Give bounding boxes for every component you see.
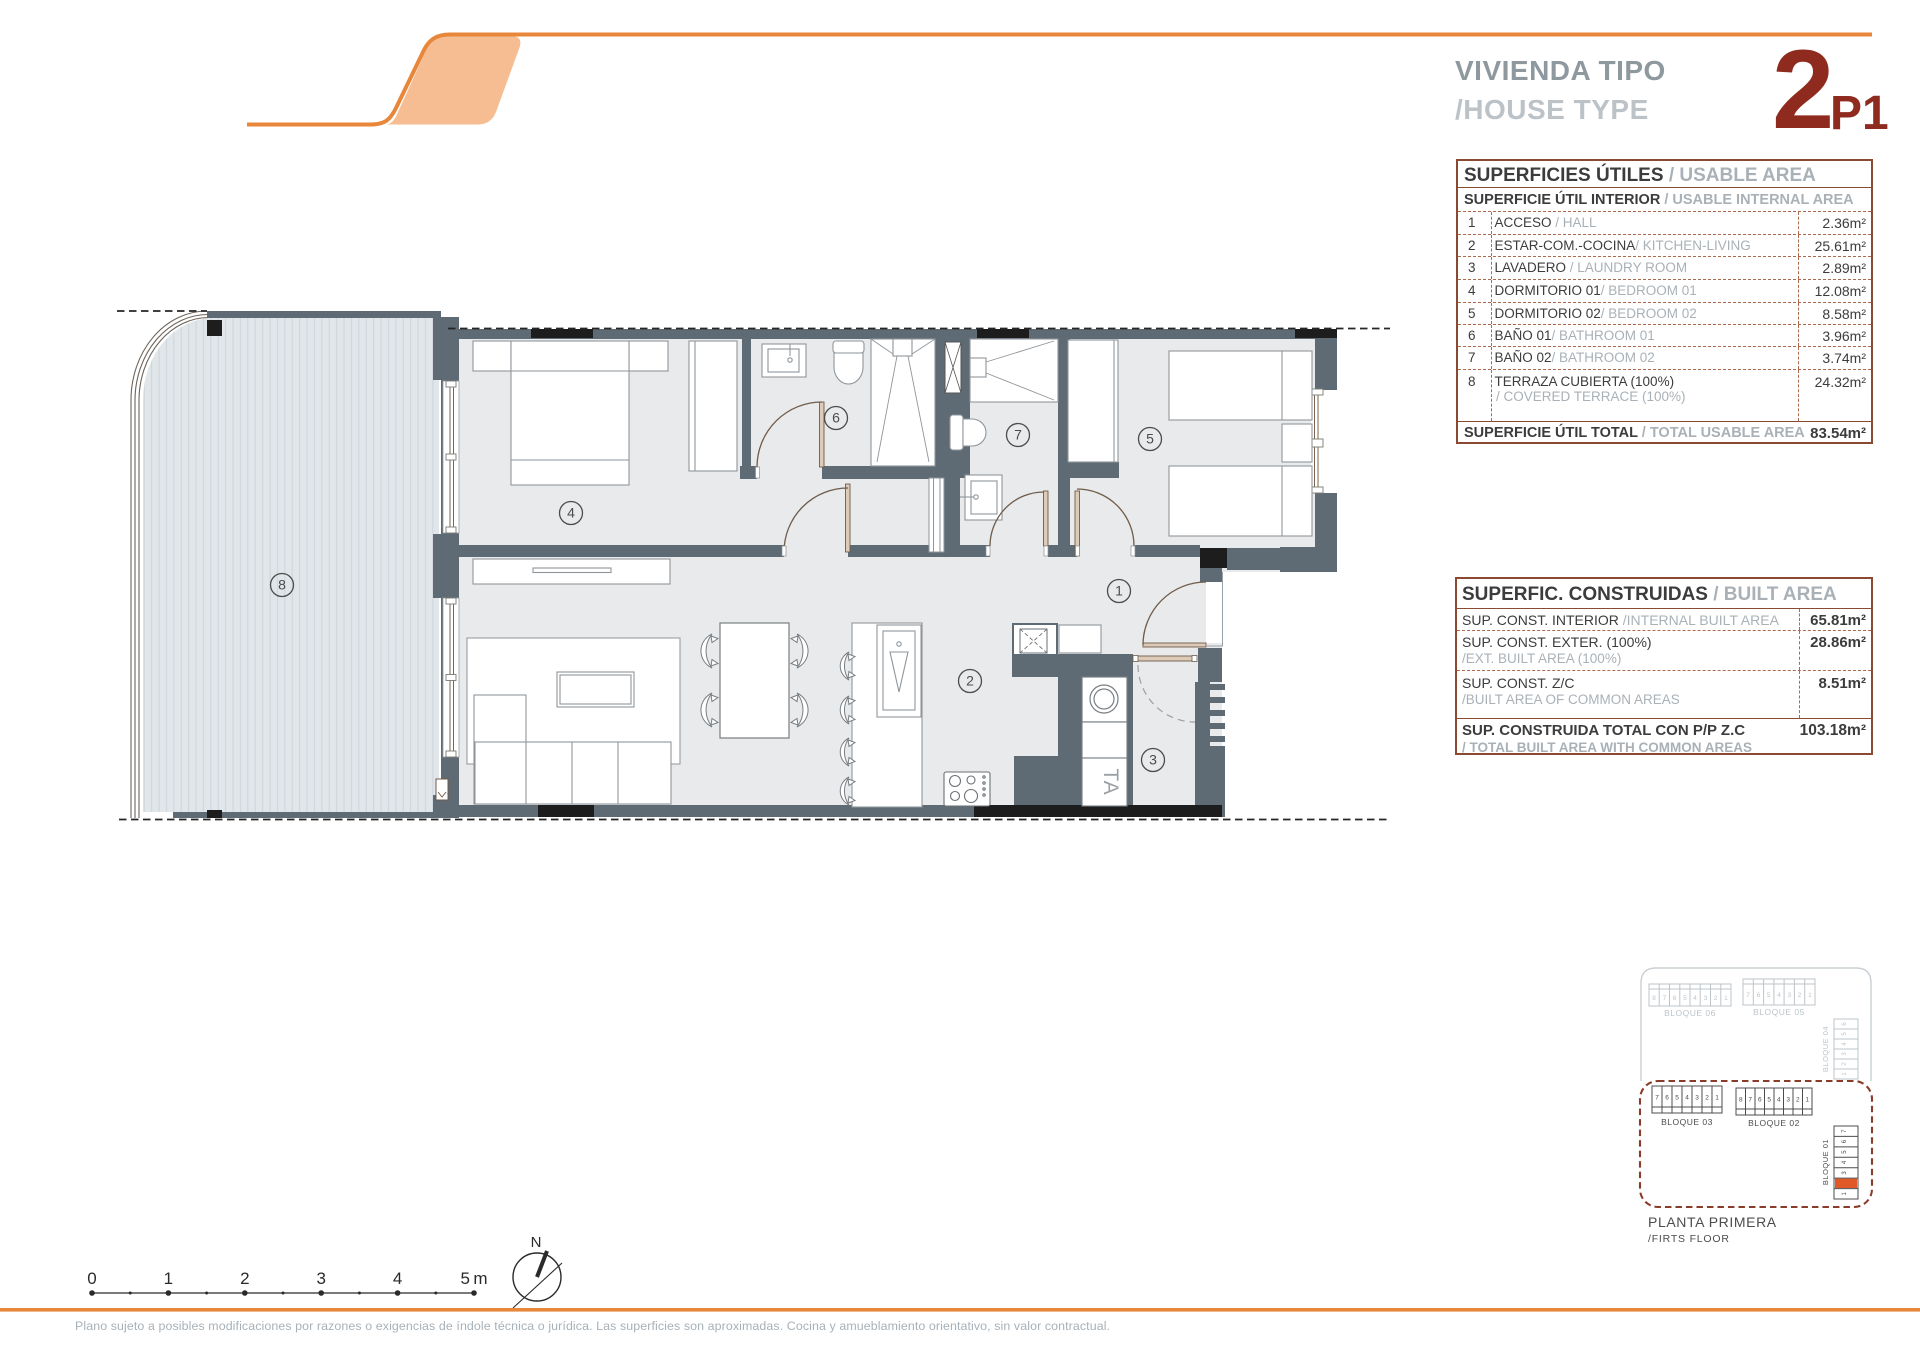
svg-text:5: 5 [1767, 1097, 1771, 1104]
svg-text:BLOQUE 04: BLOQUE 04 [1821, 1026, 1830, 1072]
svg-text:6: 6 [1758, 1097, 1762, 1104]
svg-text:3: 3 [1787, 992, 1791, 999]
svg-text:8: 8 [1652, 995, 1656, 1002]
svg-text:4: 4 [1777, 992, 1781, 999]
svg-text:2: 2 [1842, 1062, 1848, 1066]
svg-text:1: 1 [1715, 1095, 1719, 1102]
svg-text:3: 3 [1842, 1171, 1848, 1175]
svg-text:5: 5 [1146, 431, 1154, 447]
svg-text:2: 2 [966, 673, 974, 689]
svg-text:4: 4 [567, 505, 575, 521]
svg-text:3: 3 [1786, 1097, 1790, 1104]
svg-text:5: 5 [1842, 1032, 1848, 1036]
svg-text:3: 3 [1695, 1095, 1699, 1102]
svg-text:6: 6 [832, 410, 840, 426]
svg-text:7: 7 [1842, 1129, 1848, 1133]
svg-text:7: 7 [1014, 427, 1022, 443]
svg-text:7: 7 [1748, 1097, 1752, 1104]
svg-text:4: 4 [1842, 1042, 1848, 1046]
svg-text:8: 8 [278, 577, 286, 593]
svg-text:5 m: 5 m [460, 1269, 487, 1288]
svg-text:2: 2 [1714, 995, 1718, 1002]
svg-text:/FIRTS FLOOR: /FIRTS FLOOR [1648, 1233, 1730, 1245]
svg-text:5: 5 [1842, 1150, 1848, 1154]
svg-text:PLANTA PRIMERA: PLANTA PRIMERA [1648, 1214, 1777, 1230]
svg-text:6: 6 [1665, 1095, 1669, 1102]
svg-text:2: 2 [1705, 1095, 1709, 1102]
svg-text:2: 2 [1798, 992, 1802, 999]
svg-text:4: 4 [393, 1269, 402, 1288]
svg-text:1: 1 [1842, 1072, 1848, 1076]
svg-text:5: 5 [1767, 992, 1771, 999]
svg-text:2: 2 [240, 1269, 249, 1288]
svg-text:6: 6 [1673, 995, 1677, 1002]
svg-text:4: 4 [1777, 1097, 1781, 1104]
svg-text:TA: TA [1099, 768, 1122, 795]
svg-text:1: 1 [1842, 1191, 1848, 1195]
svg-text:7: 7 [1746, 992, 1750, 999]
svg-text:7: 7 [1663, 995, 1667, 1002]
svg-text:BLOQUE 05: BLOQUE 05 [1753, 1007, 1805, 1017]
svg-text:4: 4 [1685, 1095, 1689, 1102]
svg-text:6: 6 [1842, 1022, 1848, 1026]
svg-text:1: 1 [1724, 995, 1728, 1002]
svg-text:5: 5 [1675, 1095, 1679, 1102]
svg-text:1: 1 [1805, 1097, 1809, 1104]
svg-text:BLOQUE 03: BLOQUE 03 [1661, 1117, 1713, 1127]
svg-text:3: 3 [1704, 995, 1708, 1002]
svg-text:N: N [531, 1234, 542, 1251]
svg-text:1: 1 [1115, 583, 1123, 599]
svg-text:1: 1 [1808, 992, 1812, 999]
svg-text:0: 0 [87, 1269, 96, 1288]
svg-text:5: 5 [1683, 995, 1687, 1002]
svg-text:BLOQUE 01: BLOQUE 01 [1821, 1139, 1830, 1185]
svg-text:3: 3 [316, 1269, 325, 1288]
svg-text:6: 6 [1842, 1139, 1848, 1143]
svg-text:7: 7 [1655, 1095, 1659, 1102]
svg-text:BLOQUE 02: BLOQUE 02 [1748, 1118, 1800, 1128]
svg-text:2: 2 [1796, 1097, 1800, 1104]
svg-text:8: 8 [1739, 1097, 1743, 1104]
svg-text:BLOQUE 06: BLOQUE 06 [1664, 1008, 1716, 1018]
svg-text:4: 4 [1842, 1160, 1848, 1164]
svg-text:3: 3 [1149, 752, 1157, 768]
svg-text:6: 6 [1757, 992, 1761, 999]
svg-text:1: 1 [164, 1269, 173, 1288]
svg-text:4: 4 [1693, 995, 1697, 1002]
svg-text:3: 3 [1842, 1052, 1848, 1056]
